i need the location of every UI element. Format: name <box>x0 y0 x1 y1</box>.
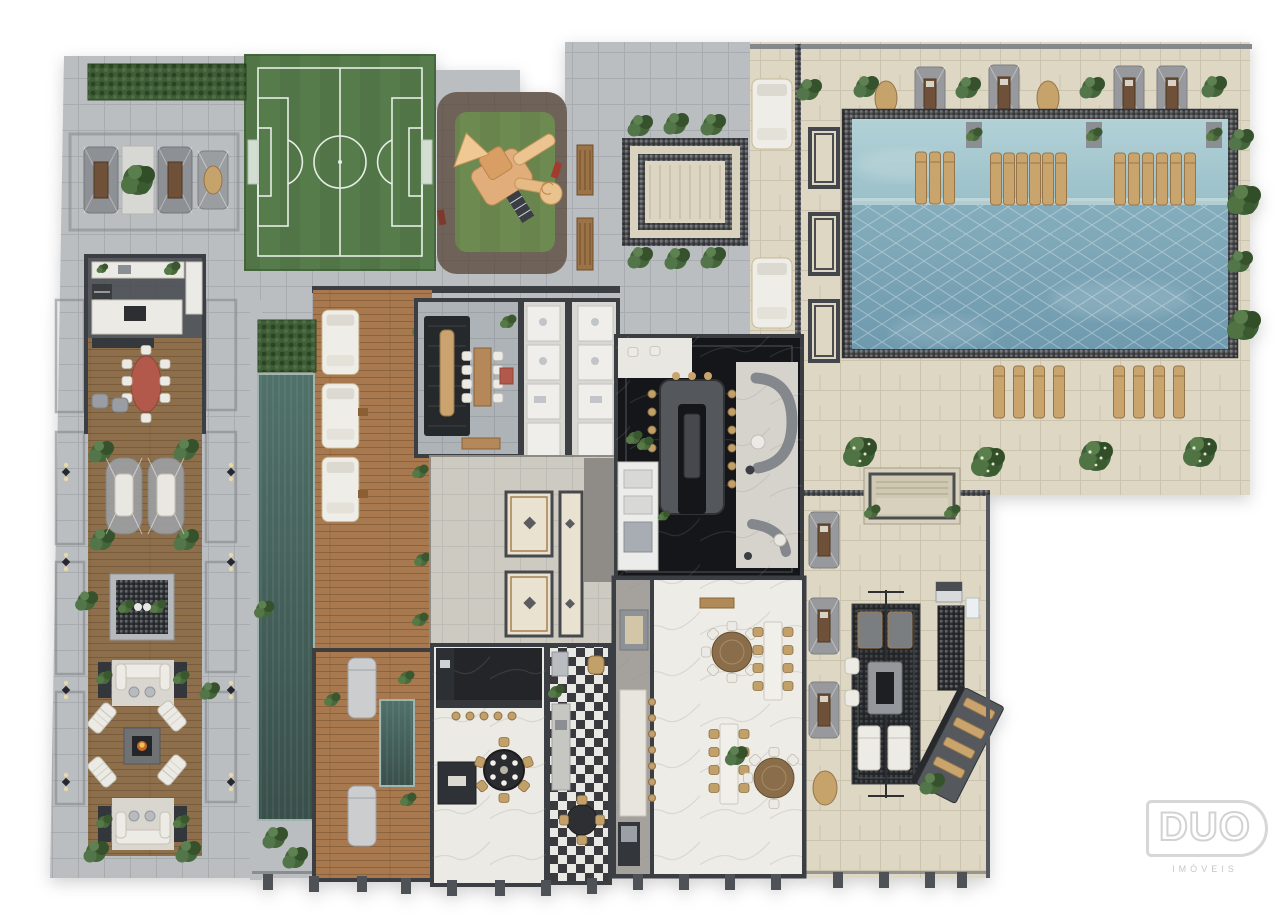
sideboard <box>700 598 734 608</box>
floor-plan-page: DUO IMÓVEIS <box>0 0 1280 920</box>
ornamental-rug <box>506 572 552 636</box>
center-building <box>200 286 804 885</box>
duo-logo: DUO IMÓVEIS <box>1146 800 1264 874</box>
party-hall <box>614 578 804 876</box>
soccer-field <box>245 55 435 270</box>
daybed <box>322 457 359 521</box>
ornamental-parterre <box>622 138 748 246</box>
bar-counter <box>620 690 646 816</box>
logo-subtitle: IMÓVEIS <box>1146 864 1264 874</box>
fridge <box>966 598 979 618</box>
restrooms <box>522 300 618 460</box>
armchair <box>588 656 604 674</box>
communal-table <box>474 348 491 406</box>
gourmet-room <box>432 645 546 885</box>
armchair <box>92 394 108 408</box>
chaise-sofa <box>440 330 454 416</box>
swing-pod <box>148 458 184 534</box>
massage-bed <box>348 658 376 718</box>
cabana <box>809 512 839 568</box>
goal-right <box>422 140 432 184</box>
plan-root <box>50 42 1261 896</box>
service-units <box>618 462 658 570</box>
duo-logo-mark: DUO <box>1146 800 1268 857</box>
armchair <box>112 398 128 412</box>
decorative-panels <box>808 127 840 363</box>
ornamental-rug <box>506 492 552 556</box>
cabana <box>809 598 839 654</box>
swing-lounge <box>88 432 202 856</box>
swing-pod <box>106 458 142 534</box>
logo-title: DUO <box>1159 805 1251 849</box>
cabana <box>809 682 839 738</box>
daybed <box>322 384 359 448</box>
sofa <box>888 612 912 648</box>
swimming-pool <box>843 110 1237 357</box>
massage-bed <box>348 786 376 846</box>
garden-steps <box>864 468 961 524</box>
lounge-corner <box>736 362 798 568</box>
cabinet <box>462 438 500 449</box>
sofa <box>858 612 882 648</box>
floor-plan-image <box>0 0 1280 920</box>
entry-marble <box>618 338 692 378</box>
kitchen <box>548 645 610 883</box>
daybed <box>752 79 792 149</box>
runner-rug <box>560 492 582 636</box>
bar-lounge <box>616 336 802 582</box>
sideboard <box>500 368 513 384</box>
lounger <box>888 726 910 770</box>
bbq-gourmet-room <box>86 256 204 432</box>
u-shaped-bar <box>660 372 724 514</box>
daybed <box>322 310 359 374</box>
lobby <box>430 456 620 656</box>
round-lounger <box>813 771 837 805</box>
armchair <box>845 658 859 674</box>
lounger <box>858 726 880 770</box>
kitchen-island <box>552 704 570 790</box>
armchair <box>845 690 859 706</box>
oval-dining-table <box>131 356 161 412</box>
lounge-room <box>416 300 520 456</box>
fire-pit <box>124 728 160 764</box>
fridge <box>552 652 568 676</box>
goal-left <box>248 140 258 184</box>
fountain-garden <box>110 574 174 640</box>
daybed <box>752 258 792 328</box>
